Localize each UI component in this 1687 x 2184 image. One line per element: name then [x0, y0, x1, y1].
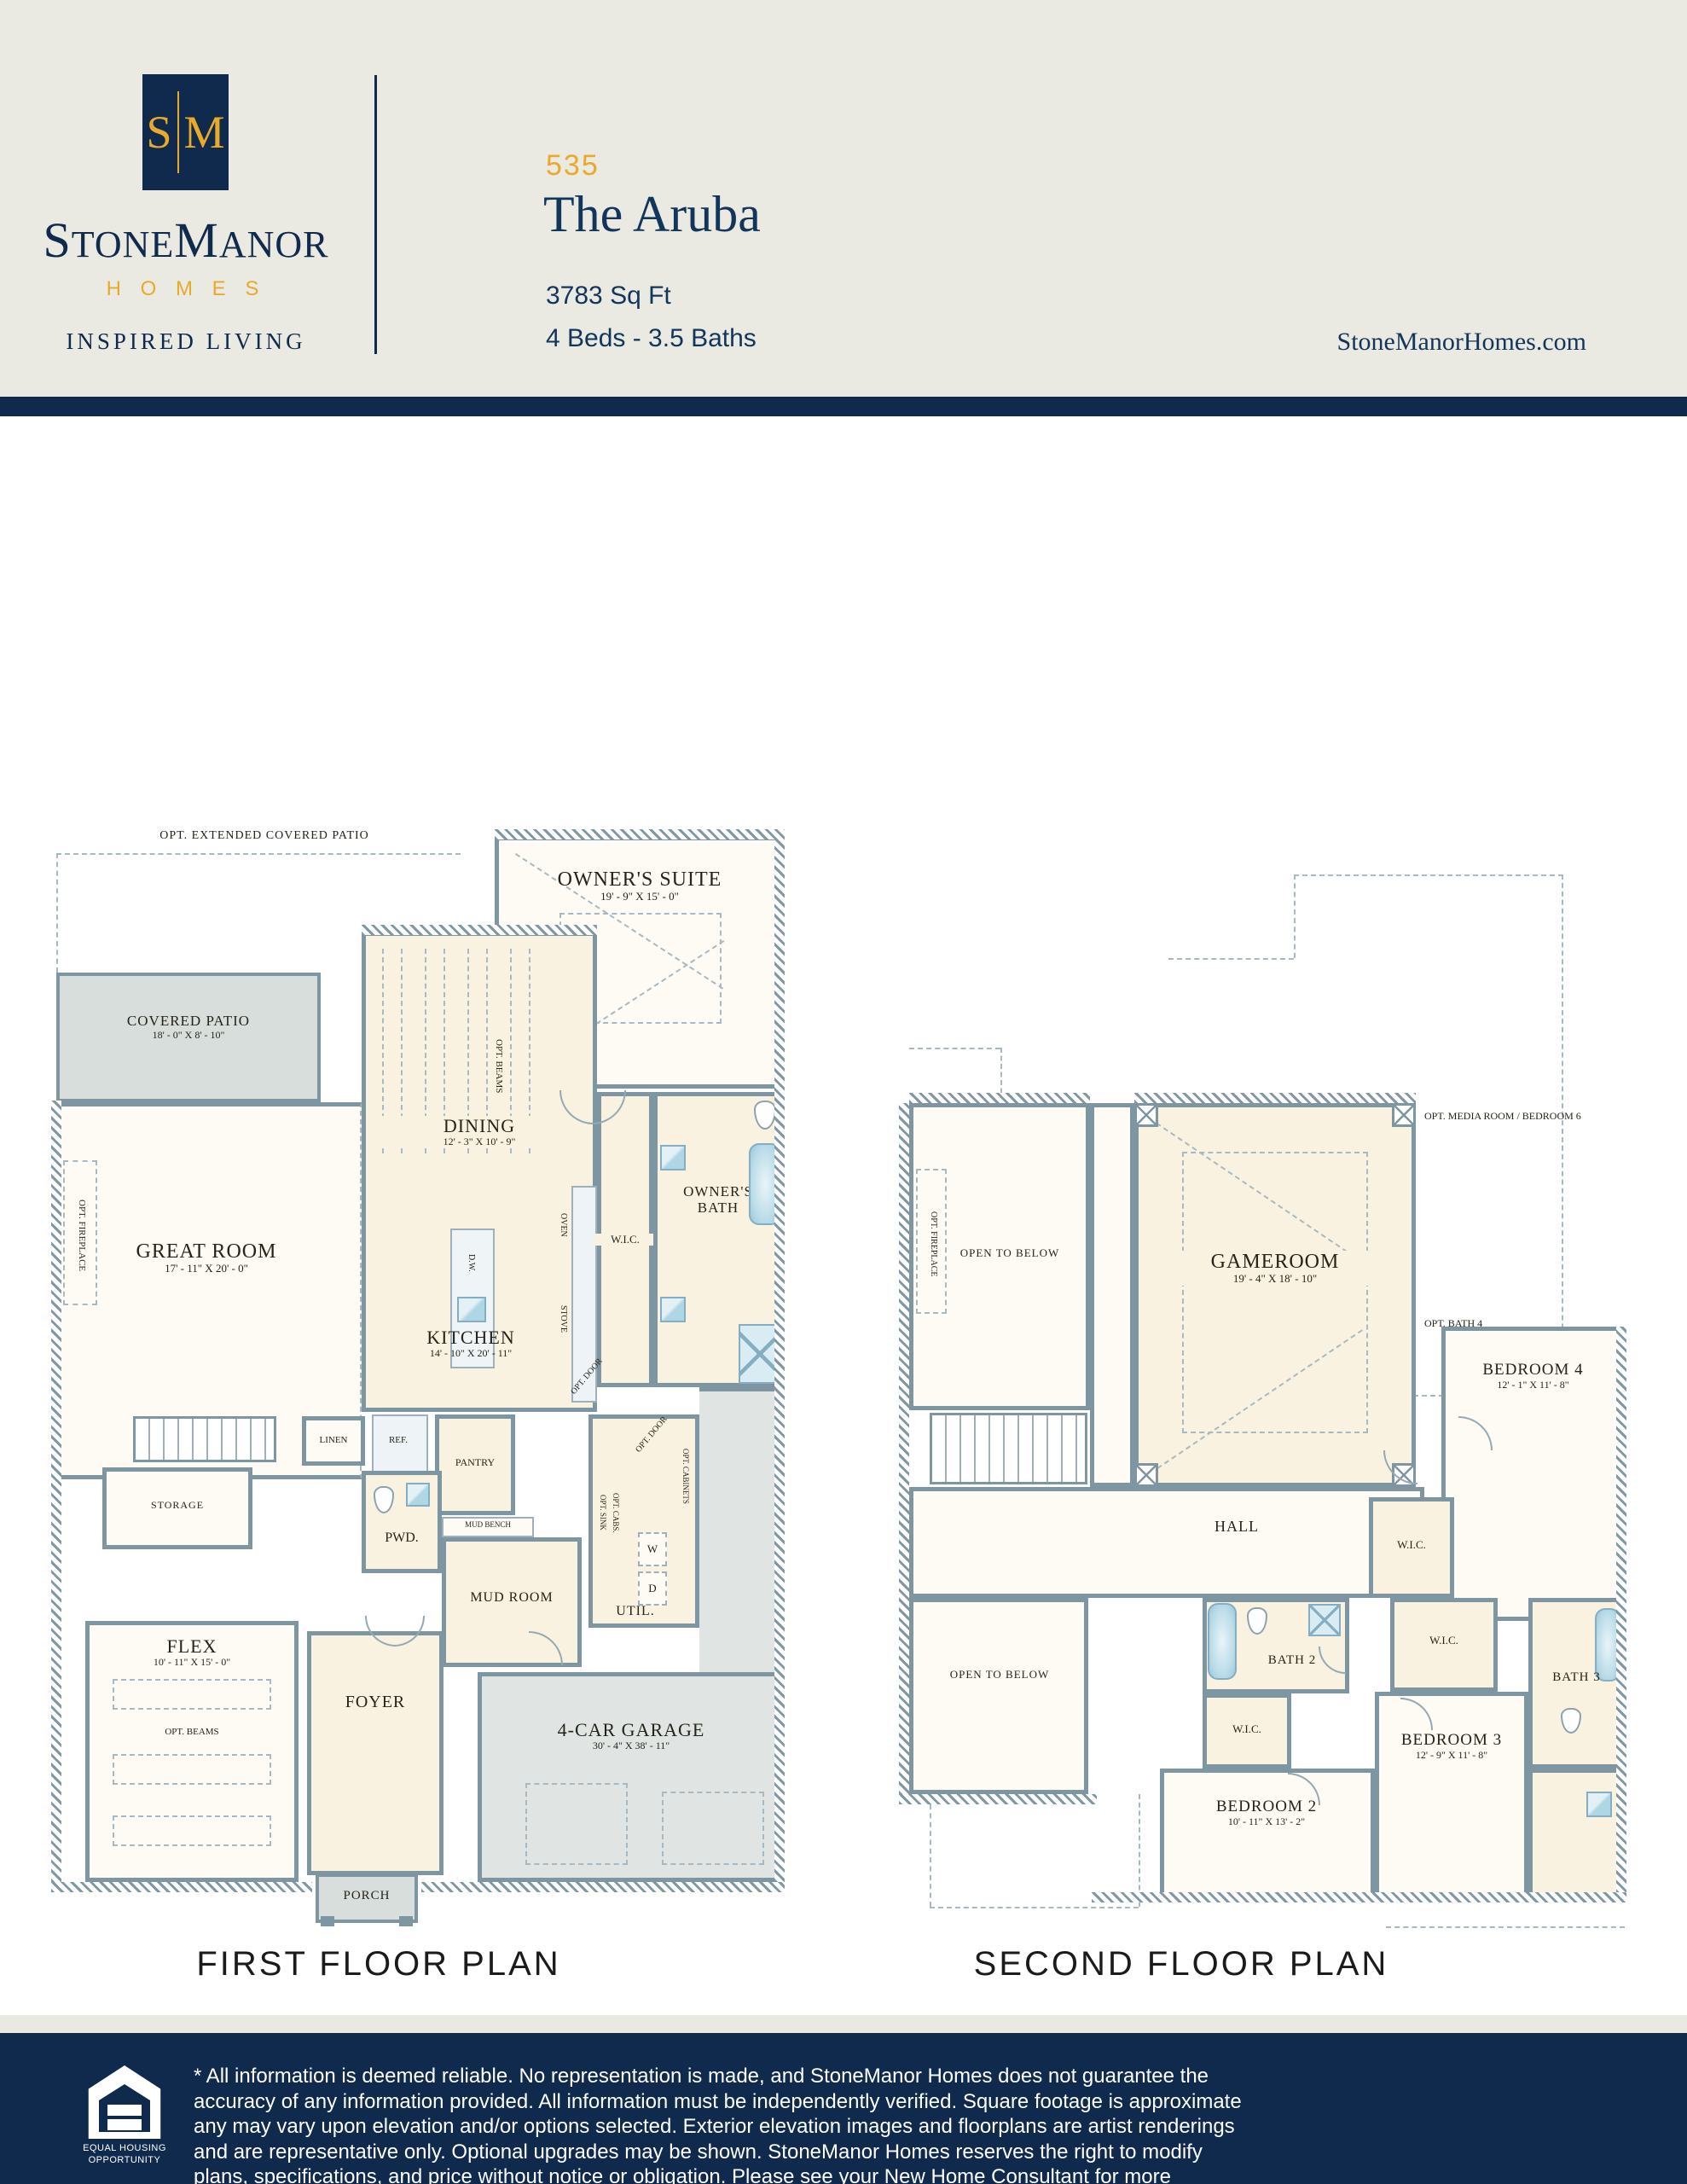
website-text: StoneManorHomes.com — [1211, 328, 1586, 356]
dining-opt-beams-label: OPT. BEAMS — [491, 1019, 504, 1113]
foyer — [307, 1631, 443, 1875]
bedroom-3 — [1375, 1692, 1528, 1902]
owners-suite-label: OWNER'S SUITE 19' - 9" X 15' - 0" — [512, 868, 768, 903]
ref-label: REF. — [372, 1435, 425, 1445]
opt-roofline-h — [1168, 958, 1294, 960]
opt-fireplace-label-2f: OPT. FIREPLACE — [925, 1184, 938, 1304]
open-to-below-bottom — [909, 1598, 1088, 1794]
hatch-right — [774, 829, 785, 1882]
owners-wic-label: W.I.C. — [594, 1234, 657, 1246]
powder-label: PWD. — [362, 1531, 442, 1546]
porch-label: PORCH — [316, 1889, 418, 1903]
mud-bench-label: MUD BENCH — [442, 1521, 534, 1530]
stairs-second-floor — [930, 1413, 1087, 1484]
bedroom-2 — [1160, 1769, 1375, 1902]
opt-extended-patio-label: OPT. EXTENDED COVERED PATIO — [119, 829, 409, 842]
header: S M STONEMANOR H O M E S INSPIRED LIVING… — [0, 0, 1687, 397]
bath-3-vanity — [1586, 1792, 1612, 1817]
opt-cabs-label: OPT. CABS. — [608, 1476, 619, 1549]
flyer-page: S M STONEMANOR H O M E S INSPIRED LIVING… — [0, 0, 1687, 2184]
hall — [909, 1487, 1424, 1598]
bath-3-label: BATH 3 — [1528, 1670, 1625, 1685]
owners-bath-vanity-1 — [660, 1145, 686, 1170]
open-to-below-top-label: OPEN TO BELOW — [930, 1247, 1090, 1259]
porch-post-right — [399, 1916, 413, 1926]
island-sink — [457, 1297, 486, 1322]
linen-label: LINEN — [302, 1435, 365, 1445]
pantry-label: PANTRY — [435, 1457, 515, 1468]
roofline-bl-h — [930, 1907, 1139, 1908]
foyer-label: FOYER — [307, 1693, 443, 1711]
first-floor-caption: FIRST FLOOR PLAN — [123, 1945, 635, 1984]
gameroom-label: GAMEROOM 19' - 4" X 18' - 10" — [1160, 1251, 1390, 1286]
garage-bay-1 — [525, 1783, 628, 1865]
roofline-bl-v2 — [1139, 1794, 1140, 1907]
sm-logo-s: S — [146, 106, 171, 159]
flex-label: FLEX 10' - 11" X 15' - 0" — [96, 1636, 288, 1668]
opt-sink-label: OPT. SINK — [595, 1476, 606, 1549]
dryer-box: D — [638, 1571, 667, 1606]
washer-label: W — [647, 1542, 658, 1556]
garage-label: 4-CAR GARAGE 30' - 4" X 38' - 11" — [495, 1720, 768, 1751]
second-floor-plan: OPT. MEDIA ROOM / BEDROOM 6 OPT. BATH 4 … — [878, 853, 1629, 1911]
hatch-2f-top-otb — [909, 1093, 1090, 1103]
sm-logo-m: M — [184, 106, 225, 159]
eho-equals-top — [107, 2105, 142, 2116]
bedroom-4-wic-label: W.I.C. — [1369, 1539, 1454, 1551]
hatch-2f-bottom — [1092, 1892, 1626, 1902]
opt-cabinets-label: OPT. CABINETS — [677, 1426, 689, 1525]
plan-sqft: 3783 Sq Ft — [546, 282, 887, 310]
dryer-label: D — [648, 1582, 656, 1595]
hatch-bottom-right — [421, 1882, 785, 1892]
opt-roofline-notch-h — [909, 1048, 1000, 1049]
hatch-suite-top — [495, 829, 783, 839]
brand-tagline: INSPIRED LIVING — [41, 329, 331, 355]
great-room-label: GREAT ROOM 17' - 11" X 20' - 0" — [78, 1240, 334, 1275]
plan-name: The Aruba — [543, 186, 1055, 242]
dining-label: DINING 12' - 3" X 10' - 9" — [379, 1116, 580, 1147]
flex-opt-beams-label: OPT. BEAMS — [113, 1727, 271, 1737]
bedroom-4-label: BEDROOM 4 12' - 1" X 11' - 8" — [1446, 1362, 1620, 1391]
gameroom-post-tr — [1392, 1103, 1416, 1127]
hatch-left — [51, 1101, 61, 1882]
hatch-2f-top-gameroom — [1134, 1093, 1416, 1103]
upper-corridor — [1090, 1103, 1134, 1487]
open-to-below-bottom-label: OPEN TO BELOW — [919, 1669, 1080, 1681]
plan-number: 535 — [546, 150, 716, 182]
bath-3-vanity-room — [1528, 1769, 1625, 1902]
hatch-2f-bottom-left — [899, 1794, 1097, 1804]
porch-post-left — [321, 1916, 334, 1926]
hatch-dining-top — [362, 925, 597, 935]
brand-wordmark: STONEMANOR — [41, 213, 331, 268]
sm-logo-divider — [177, 91, 179, 173]
hatch-bottom-left — [51, 1882, 312, 1892]
gameroom-tray — [1182, 1152, 1368, 1433]
brand-homes: H O M E S — [41, 278, 331, 300]
bedroom-3-label: BEDROOM 3 12' - 9" X 11' - 8" — [1375, 1732, 1528, 1761]
washer-box: W — [638, 1532, 667, 1566]
hall-label: HALL — [1168, 1519, 1305, 1536]
first-floor-plan: OPT. EXTENDED COVERED PATIO COVERED PATI… — [51, 819, 786, 1928]
plan-beds-baths: 4 Beds - 3.5 Baths — [546, 324, 972, 352]
garage-bay-2 — [662, 1792, 764, 1865]
bedroom-3-wic-label: W.I.C. — [1390, 1635, 1498, 1647]
flex-beam-2 — [113, 1754, 271, 1785]
powder-vanity — [406, 1483, 430, 1507]
covered-patio-label: COVERED PATIO 18' - 0" X 8' - 10" — [82, 1014, 295, 1041]
roofline-bl-v1 — [930, 1804, 931, 1907]
hatch-2f-right — [1616, 1327, 1626, 1902]
bath-2-tub — [1208, 1603, 1237, 1680]
eho-text: EQUAL HOUSING OPPORTUNITY — [72, 2142, 177, 2167]
footer-gray-strip — [0, 2015, 1687, 2033]
eho-equals-bottom — [107, 2119, 142, 2130]
bedroom-2-label: BEDROOM 2 10' - 11" X 13' - 2" — [1181, 1798, 1352, 1827]
opt-media-label: OPT. MEDIA ROOM / BEDROOM 6 — [1424, 1111, 1638, 1122]
bedroom-2-wic-label: W.I.C. — [1203, 1723, 1291, 1735]
oven-label: OVEN — [556, 1201, 568, 1249]
kitchen-label: KITCHEN 14' - 10" X 20' - 11" — [370, 1327, 571, 1359]
footer: EQUAL HOUSING OPPORTUNITY * All informat… — [0, 2033, 1687, 2184]
header-divider — [374, 75, 377, 354]
gameroom-post-tl — [1134, 1103, 1158, 1127]
roofline-br-h — [1386, 1926, 1625, 1928]
opt-fireplace-label: OPT. FIREPLACE — [73, 1176, 87, 1295]
footer-disclaimer: * All information is deemed reliable. No… — [194, 2064, 1258, 2184]
sm-logo: S M — [142, 74, 229, 190]
owners-bath-vanity-2 — [660, 1297, 686, 1322]
eho-logo: EQUAL HOUSING OPPORTUNITY — [85, 2065, 164, 2168]
storage-label: STORAGE — [102, 1500, 252, 1511]
bath-2-shower — [1308, 1604, 1341, 1636]
dw-label: D.W. — [464, 1239, 476, 1287]
hatch-2f-left — [899, 1103, 909, 1794]
flex-beam-3 — [113, 1815, 271, 1846]
flex-beam-1 — [113, 1679, 271, 1710]
gameroom-post-bl — [1134, 1463, 1158, 1487]
utility-label: UTIL. — [588, 1604, 682, 1619]
stairs-first-floor — [133, 1416, 276, 1462]
second-floor-caption: SECOND FLOOR PLAN — [925, 1945, 1437, 1984]
header-rule — [0, 397, 1687, 416]
mud-room-label: MUD ROOM — [442, 1590, 582, 1606]
